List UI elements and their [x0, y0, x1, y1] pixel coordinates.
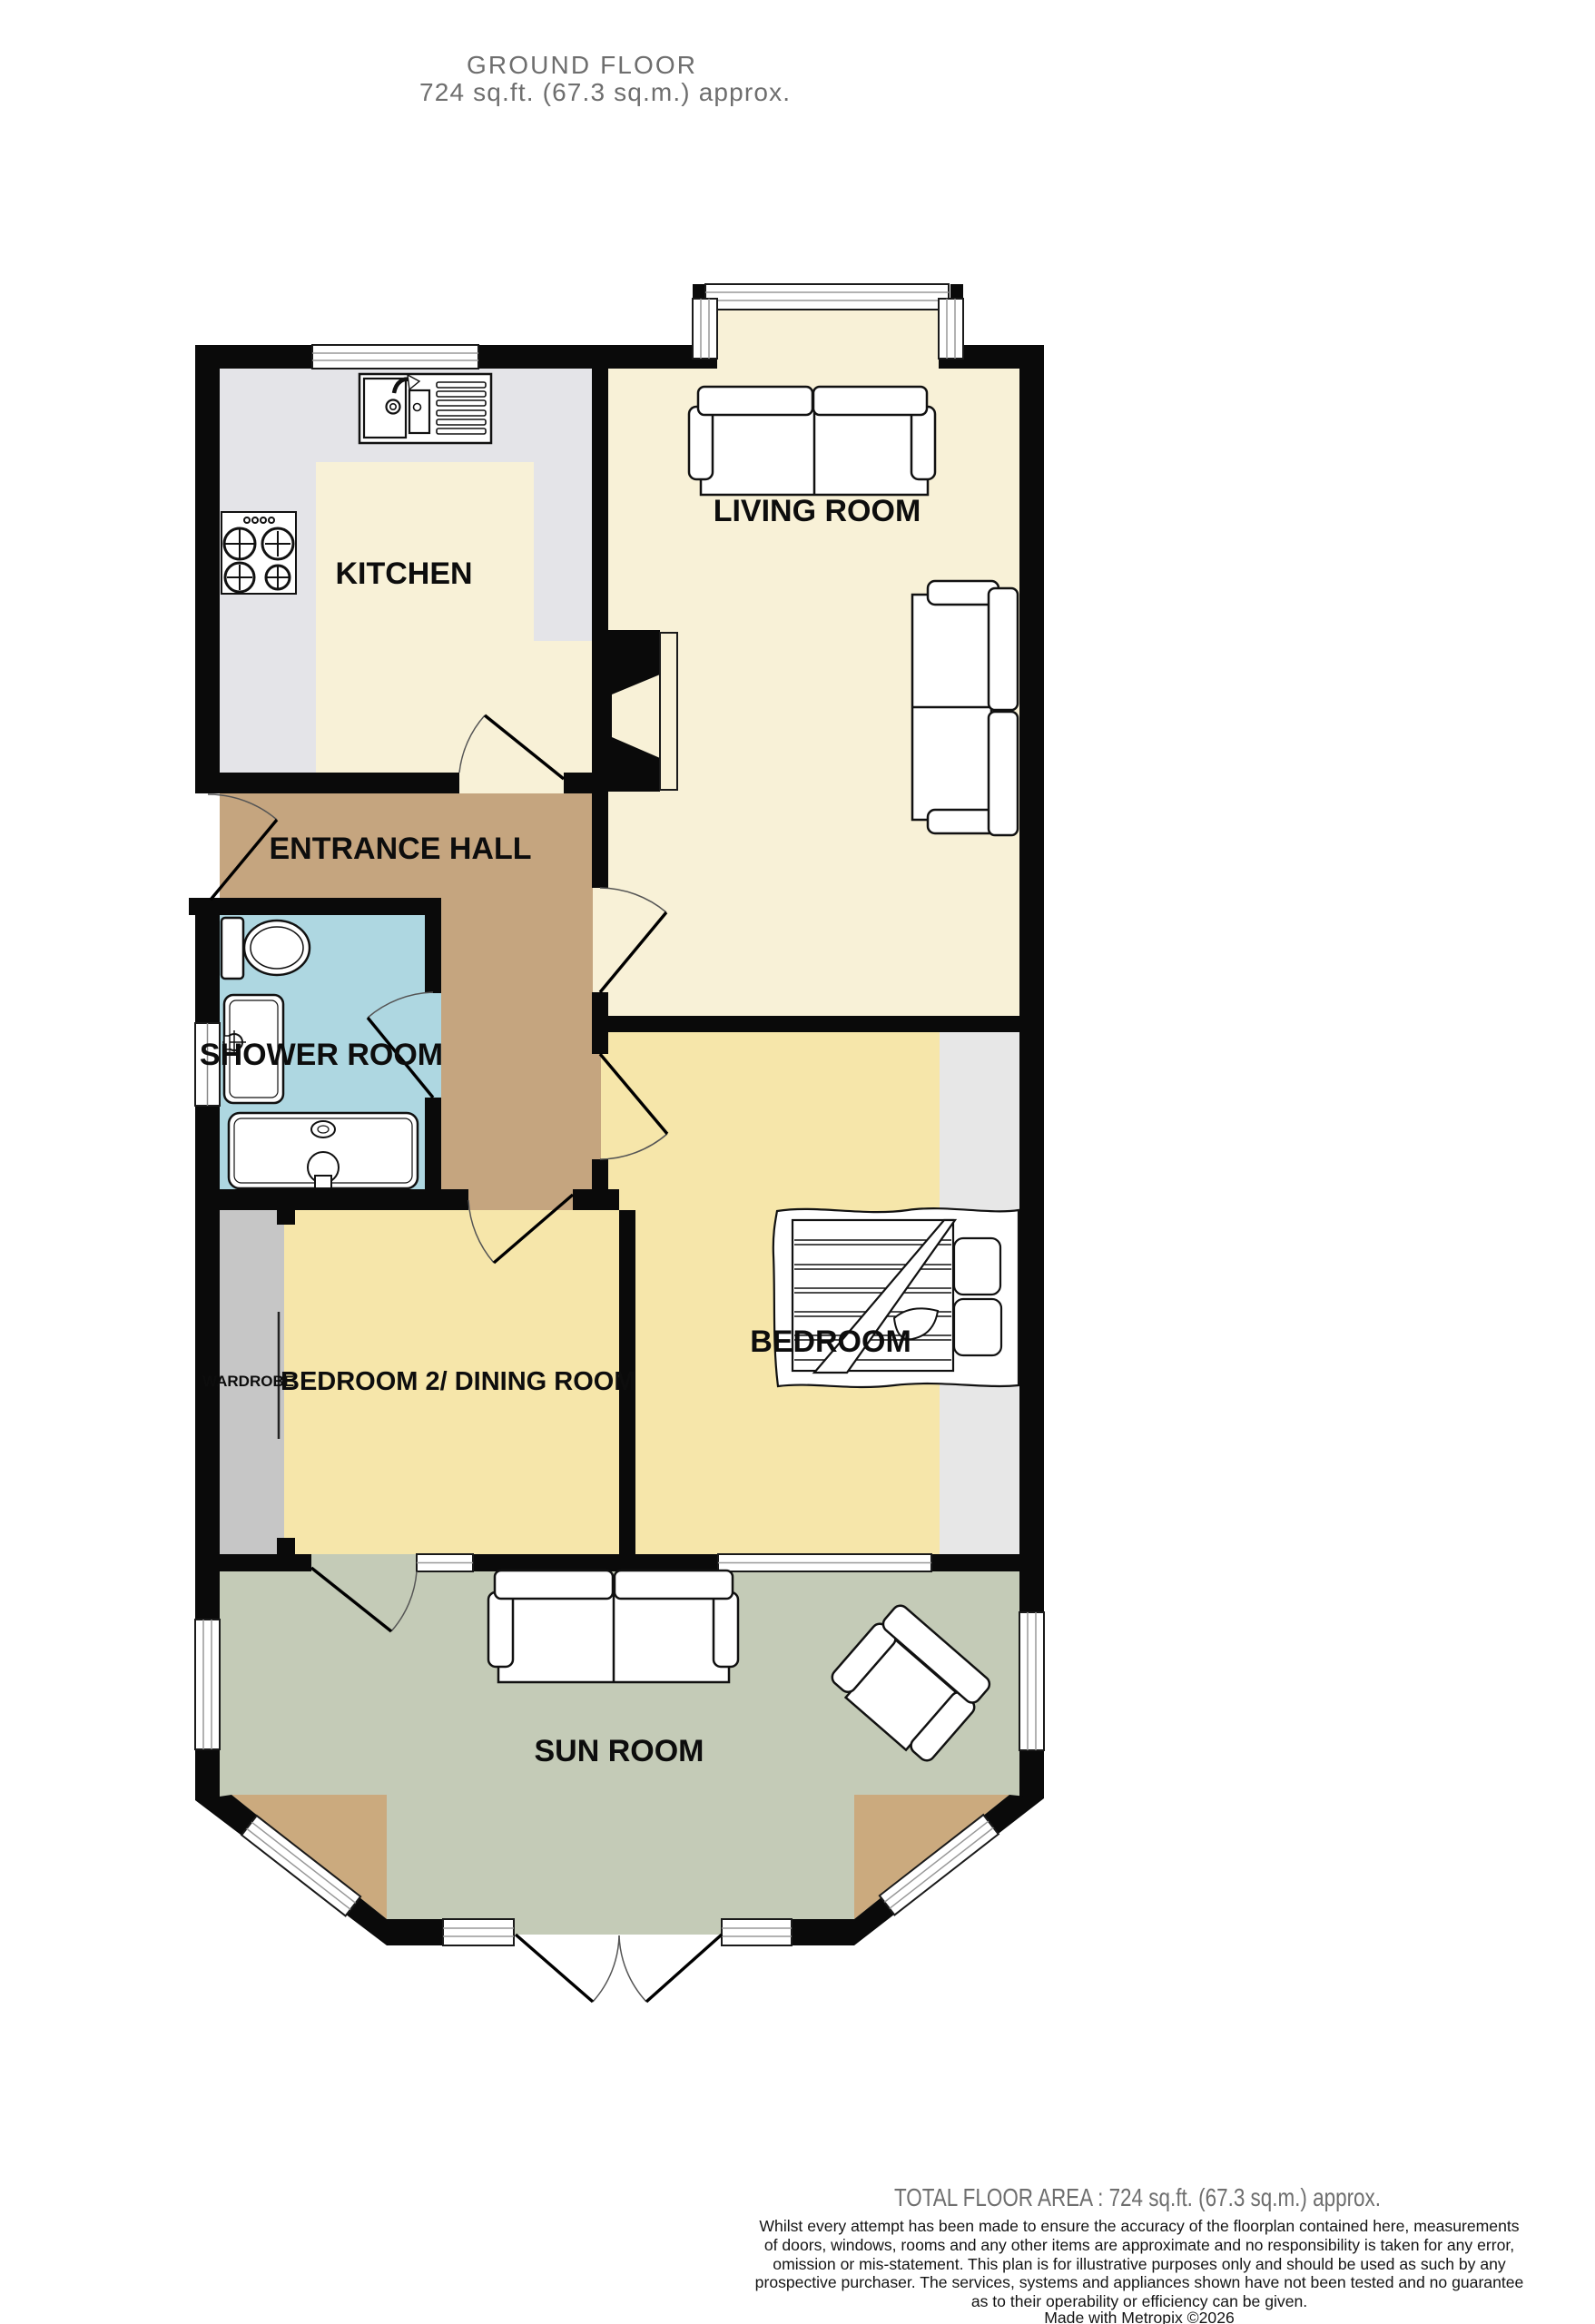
- svg-text:SHOWER ROOM: SHOWER ROOM: [200, 1038, 443, 1072]
- svg-text:BEDROOM: BEDROOM: [750, 1324, 911, 1359]
- svg-text:as to their operability or eff: as to their operability or efficiency ca…: [971, 2292, 1307, 2310]
- svg-text:KITCHEN: KITCHEN: [335, 556, 472, 591]
- svg-text:LIVING ROOM: LIVING ROOM: [714, 494, 921, 528]
- svg-text:BEDROOM 2/ DINING ROOM: BEDROOM 2/ DINING ROOM: [281, 1367, 636, 1396]
- svg-text:Made with Metropix ©2026: Made with Metropix ©2026: [1044, 2309, 1235, 2324]
- svg-text:prospective purchaser. The ser: prospective purchaser. The services, sys…: [755, 2273, 1524, 2291]
- svg-text:of doors, windows, rooms and a: of doors, windows, rooms and any other i…: [764, 2236, 1514, 2254]
- svg-text:TOTAL FLOOR AREA : 724 sq.ft.: TOTAL FLOOR AREA : 724 sq.ft. (67.3 sq.m…: [894, 2183, 1381, 2211]
- svg-text:omission or mis-statement. Thi: omission or mis-statement. This plan is …: [773, 2255, 1506, 2273]
- svg-text:GROUND FLOOR: GROUND FLOOR: [467, 51, 695, 79]
- svg-text:724 sq.ft. (67.3 sq.m.) approx: 724 sq.ft. (67.3 sq.m.) approx.: [419, 78, 790, 106]
- svg-text:ENTRANCE HALL: ENTRANCE HALL: [270, 832, 532, 866]
- svg-text:SUN ROOM: SUN ROOM: [535, 1734, 704, 1768]
- svg-text:Whilst every attempt has been: Whilst every attempt has been made to en…: [759, 2217, 1519, 2235]
